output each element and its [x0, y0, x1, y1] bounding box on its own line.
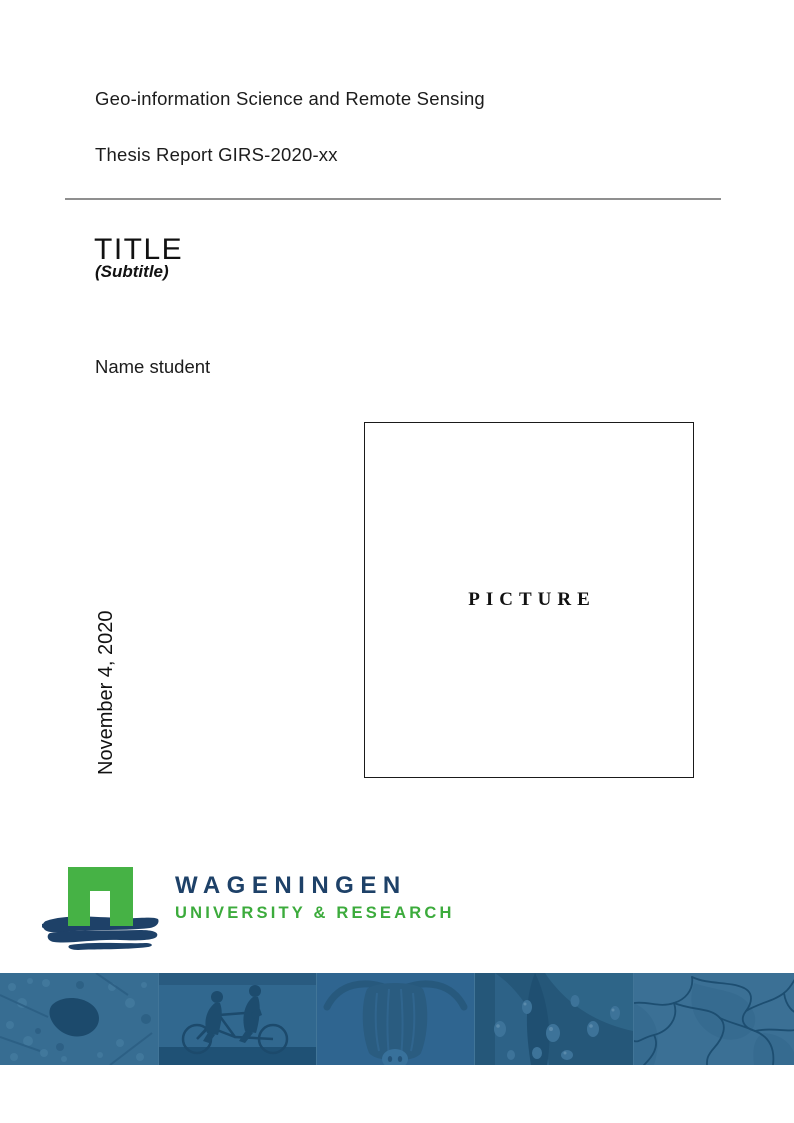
thesis-cover-page: Geo-information Science and Remote Sensi… — [0, 0, 794, 1123]
publication-date: November 4, 2020 — [93, 600, 120, 775]
report-id: Thesis Report GIRS-2020-xx — [95, 144, 338, 166]
program-name: Geo-information Science and Remote Sensi… — [95, 88, 485, 110]
header-divider — [65, 198, 721, 200]
author-name: Name student — [95, 356, 210, 378]
water-droplets-photo — [474, 973, 633, 1065]
aerial-map-photo — [0, 973, 158, 1065]
wageningen-gate-logo-icon — [40, 861, 160, 953]
tandem-cyclists-photo — [158, 973, 316, 1065]
cracked-earth-photo — [633, 973, 794, 1065]
logo-institution-name: WAGENINGEN — [175, 872, 407, 900]
page-subtitle: (Subtitle) — [95, 262, 169, 282]
logo-tagline: UNIVERSITY & RESEARCH — [175, 904, 455, 923]
picture-placeholder-label: PICTURE — [462, 589, 596, 611]
photo-banner — [0, 973, 794, 1065]
highland-cow-photo — [316, 973, 474, 1065]
picture-placeholder-box: PICTURE — [364, 422, 694, 778]
